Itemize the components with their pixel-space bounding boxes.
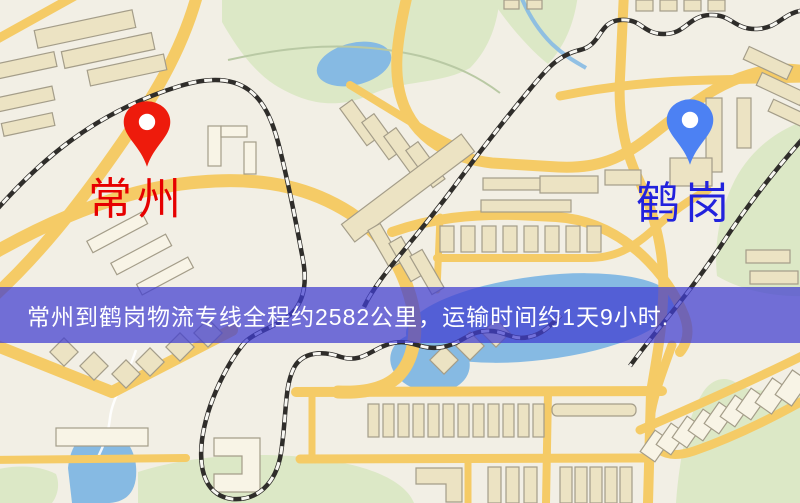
location-pin-icon — [122, 98, 172, 170]
origin-pin[interactable] — [122, 98, 172, 170]
route-info-banner: 常州到鹤岗物流专线全程约2582公里，运输时间约1天9小时. — [0, 287, 800, 343]
destination-city-label: 鹤岗 — [636, 182, 734, 226]
logistics-route-map: 常州 鹤岗 常州到鹤岗物流专线全程约2582公里，运输时间约1天9小时. — [0, 0, 800, 503]
route-info-text: 常州到鹤岗物流专线全程约2582公里，运输时间约1天9小时. — [0, 298, 669, 332]
map-artwork — [0, 0, 800, 503]
origin-city-label: 常州 — [88, 178, 186, 222]
destination-pin[interactable] — [665, 96, 715, 168]
location-pin-icon — [665, 96, 715, 168]
